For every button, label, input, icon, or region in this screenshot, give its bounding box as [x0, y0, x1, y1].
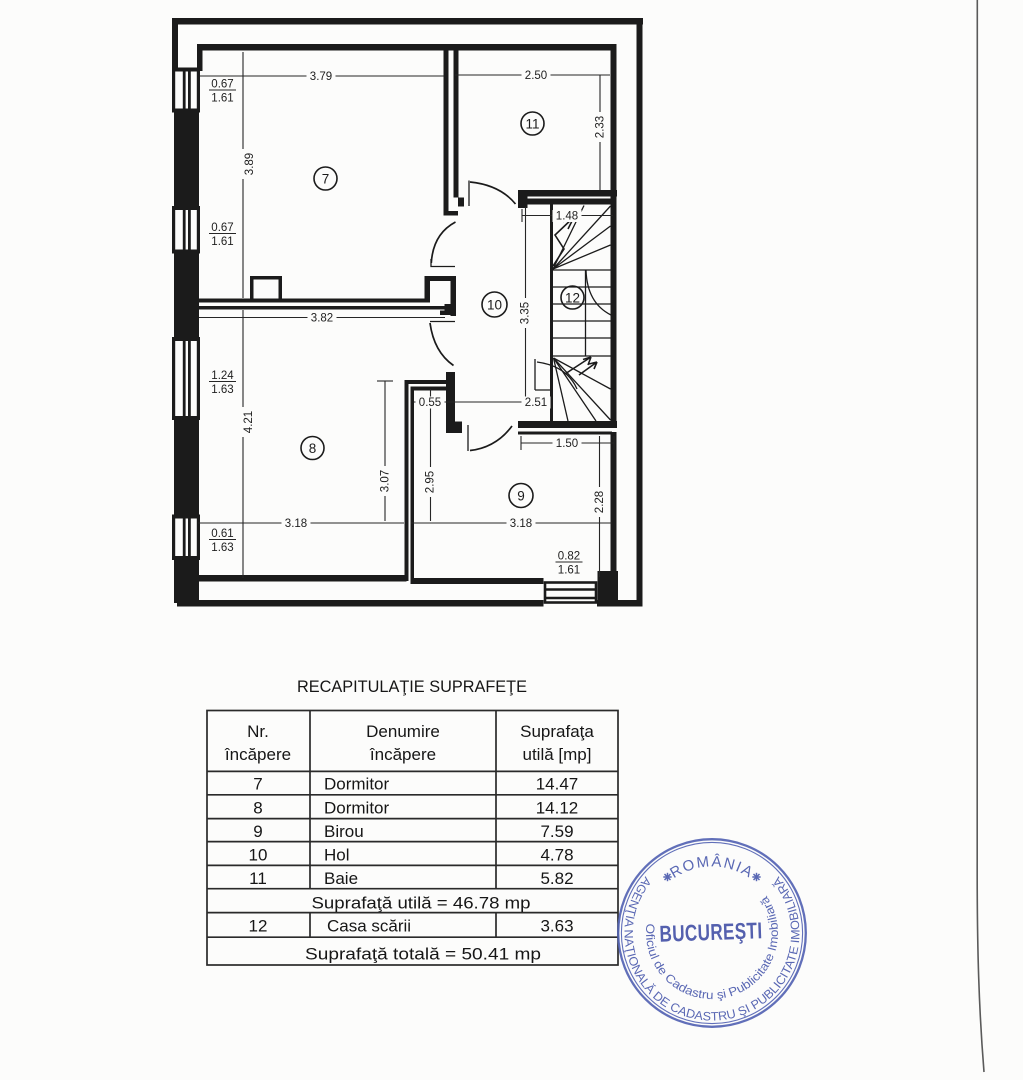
- svg-text:Suprafaţa: Suprafaţa: [520, 722, 594, 741]
- svg-text:0.67: 0.67: [211, 79, 233, 91]
- svg-text:4.78: 4.78: [540, 846, 573, 865]
- svg-text:4.21: 4.21: [243, 411, 255, 433]
- svg-text:Casa scării: Casa scării: [327, 917, 411, 936]
- svg-text:Denumire: Denumire: [366, 722, 440, 741]
- svg-text:8: 8: [309, 441, 317, 456]
- svg-text:7.59: 7.59: [540, 822, 573, 841]
- svg-text:2.50: 2.50: [525, 70, 547, 82]
- svg-text:utilă [mp]: utilă [mp]: [523, 745, 592, 764]
- svg-text:7: 7: [253, 775, 262, 794]
- svg-text:8: 8: [253, 799, 262, 818]
- svg-text:14.47: 14.47: [536, 775, 579, 794]
- svg-text:0.82: 0.82: [558, 551, 580, 563]
- svg-text:1.63: 1.63: [211, 542, 233, 554]
- svg-text:0.67: 0.67: [211, 222, 233, 234]
- svg-text:1.61: 1.61: [211, 236, 233, 248]
- svg-text:11: 11: [525, 116, 539, 131]
- svg-text:9: 9: [517, 488, 525, 503]
- svg-text:1.63: 1.63: [211, 384, 233, 396]
- svg-text:Nr.: Nr.: [247, 722, 269, 741]
- svg-text:încăpere: încăpere: [224, 745, 291, 764]
- svg-text:Dormitor: Dormitor: [324, 799, 390, 818]
- svg-text:Oficiul de Cadastru şi Publici: Oficiul de Cadastru şi Publicitate Imobi…: [643, 894, 781, 1002]
- svg-text:1.48: 1.48: [556, 211, 578, 223]
- svg-text:2.51: 2.51: [525, 397, 547, 409]
- svg-text:ROMÂNIA: ROMÂNIA: [667, 853, 757, 882]
- svg-text:3.18: 3.18: [285, 518, 307, 530]
- svg-text:1.50: 1.50: [556, 438, 578, 450]
- svg-text:12: 12: [565, 290, 580, 305]
- svg-text:BUCUREŞTI: BUCUREŞTI: [659, 917, 763, 947]
- svg-text:2.33: 2.33: [595, 116, 607, 138]
- svg-text:1.61: 1.61: [211, 93, 233, 105]
- svg-text:RECAPITULAŢIE SUPRAFEŢE: RECAPITULAŢIE SUPRAFEŢE: [297, 677, 527, 696]
- svg-text:10: 10: [487, 297, 502, 312]
- svg-text:Suprafaţă totală = 50.41 mp: Suprafaţă totală = 50.41 mp: [305, 945, 541, 964]
- svg-text:încăpere: încăpere: [369, 745, 436, 764]
- svg-text:3.18: 3.18: [510, 518, 532, 530]
- svg-text:2.95: 2.95: [425, 471, 437, 493]
- svg-text:3.82: 3.82: [311, 313, 333, 325]
- svg-text:Suprafaţă utilă = 46.78 mp: Suprafaţă utilă = 46.78 mp: [312, 894, 531, 913]
- svg-text:14.12: 14.12: [536, 799, 579, 818]
- svg-text:11: 11: [249, 869, 267, 888]
- svg-text:7: 7: [322, 171, 330, 186]
- svg-text:1.61: 1.61: [558, 565, 580, 577]
- svg-text:Baie: Baie: [324, 869, 358, 888]
- svg-text:0.61: 0.61: [211, 528, 233, 540]
- svg-text:3.89: 3.89: [244, 153, 256, 175]
- svg-text:12: 12: [249, 917, 268, 936]
- svg-text:0.55: 0.55: [419, 397, 441, 409]
- svg-text:5.82: 5.82: [540, 869, 573, 888]
- svg-text:9: 9: [253, 822, 262, 841]
- svg-text:2.28: 2.28: [594, 491, 606, 513]
- svg-text:1.24: 1.24: [211, 370, 234, 382]
- svg-text:Birou: Birou: [324, 822, 364, 841]
- svg-text:Dormitor: Dormitor: [324, 775, 390, 794]
- svg-text:3.63: 3.63: [540, 917, 573, 936]
- svg-text:3.35: 3.35: [520, 302, 532, 324]
- svg-text:3.79: 3.79: [310, 71, 332, 83]
- svg-text:10: 10: [249, 846, 268, 865]
- svg-text:Hol: Hol: [324, 846, 350, 865]
- svg-text:3.07: 3.07: [380, 470, 392, 492]
